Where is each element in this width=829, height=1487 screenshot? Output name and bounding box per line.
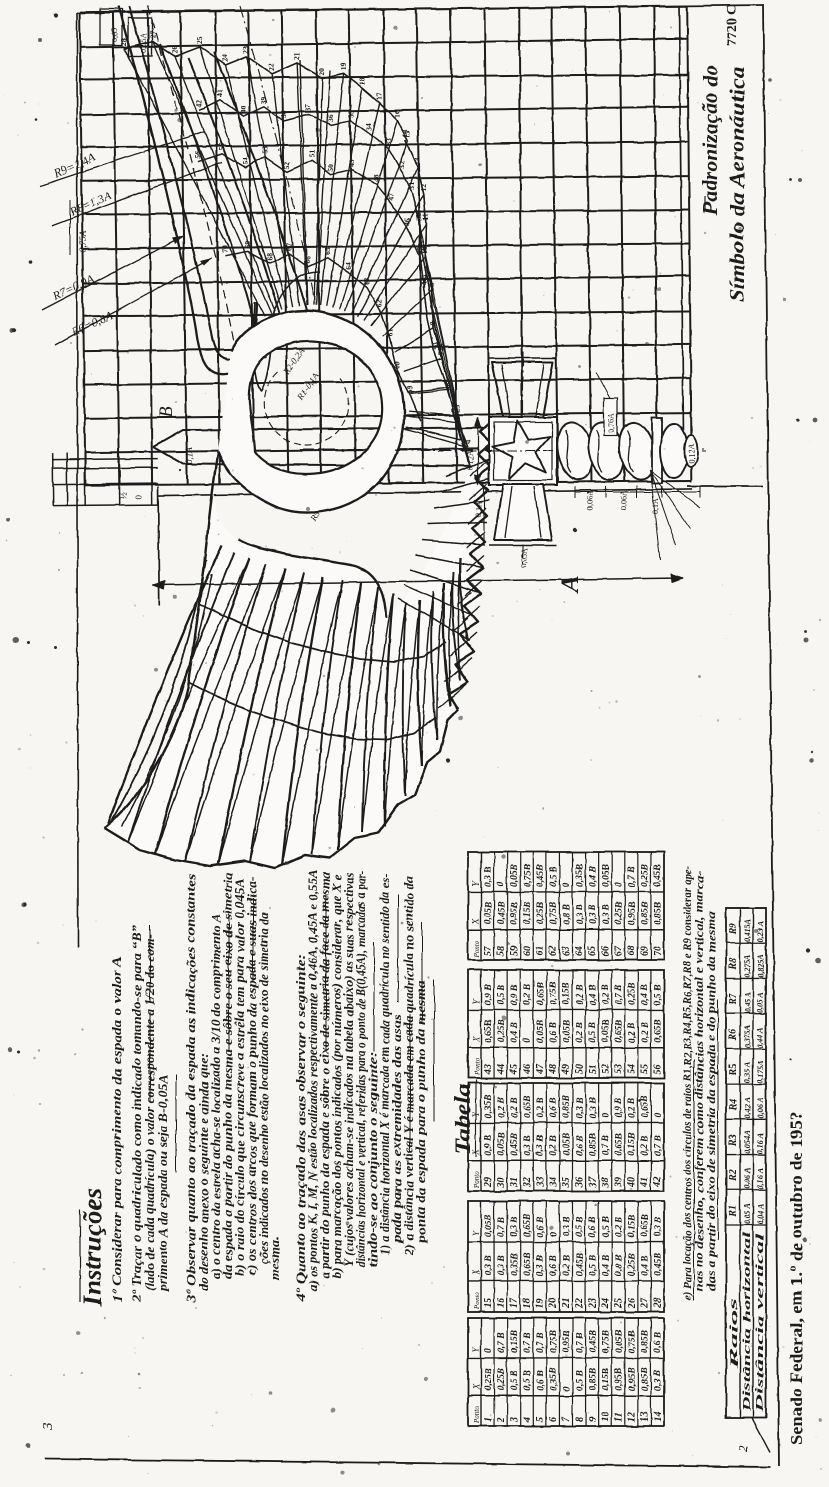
svg-text:0,25B: 0,25B <box>615 902 625 925</box>
svg-text:0,5 B: 0,5 B <box>575 1216 585 1237</box>
svg-text:32: 32 <box>522 1177 533 1188</box>
svg-text:0,415A: 0,415A <box>743 918 752 942</box>
svg-text:½: ½ <box>118 492 128 499</box>
svg-text:0,45B: 0,45B <box>654 1253 664 1276</box>
svg-text:0: 0 <box>523 1038 533 1043</box>
svg-text:0,45B: 0,45B <box>588 1330 598 1353</box>
svg-text:0,9 B: 0,9 B <box>484 1135 494 1156</box>
svg-text:0,95B: 0,95B <box>628 1368 638 1391</box>
svg-text:0,05B: 0,05B <box>615 1330 625 1353</box>
svg-text:0,375A: 0,375A <box>743 1024 752 1048</box>
svg-text:0,15B: 0,15B <box>628 1214 638 1237</box>
svg-text:15: 15 <box>483 1298 494 1308</box>
svg-text:0,7 B: 0,7 B <box>615 984 625 1005</box>
svg-text:0,05B: 0,05B <box>601 864 611 887</box>
svg-text:3: 3 <box>40 1423 56 1432</box>
svg-text:0,15B: 0,15B <box>628 1133 638 1156</box>
svg-text:0,95B: 0,95B <box>628 902 638 925</box>
svg-text:0,35B: 0,35B <box>575 864 585 887</box>
svg-text:0,05 A: 0,05 A <box>756 991 765 1013</box>
svg-text:0,3 B: 0,3 B <box>536 1255 546 1276</box>
svg-text:42: 42 <box>653 1177 664 1188</box>
svg-text:0,85B: 0,85B <box>641 1368 651 1391</box>
svg-text:0,05 A: 0,05 A <box>743 1202 752 1224</box>
svg-text:0,05B: 0,05B <box>601 1020 611 1043</box>
svg-text:36: 36 <box>574 1177 585 1188</box>
svg-text:0,12A: 0,12A <box>466 450 475 470</box>
svg-text:64: 64 <box>344 262 353 270</box>
svg-text:34: 34 <box>548 1177 559 1188</box>
svg-text:0,15B: 0,15B <box>523 902 533 925</box>
svg-text:0,2 B: 0,2 B <box>536 1097 546 1118</box>
svg-text:0,75B: 0,75B <box>628 1330 638 1353</box>
svg-text:4: 4 <box>522 1417 533 1423</box>
svg-text:0,8 B: 0,8 B <box>615 1255 625 1276</box>
svg-text:R6=0,8A: R6=0,8A <box>69 308 116 339</box>
svg-text:19: 19 <box>535 1298 546 1308</box>
svg-text:0,6 B: 0,6 B <box>536 1216 546 1237</box>
svg-text:0,25B: 0,25B <box>484 1368 494 1391</box>
svg-text:18: 18 <box>522 1298 533 1308</box>
svg-text:68: 68 <box>627 946 638 956</box>
svg-text:0: 0 <box>562 882 572 887</box>
svg-text:0,4 B: 0,4 B <box>588 866 598 887</box>
svg-text:24: 24 <box>220 54 229 62</box>
svg-text:0,5 B: 0,5 B <box>601 1216 611 1237</box>
svg-text:9: 9 <box>587 1417 598 1422</box>
svg-text:38: 38 <box>279 110 288 118</box>
svg-text:0,45B: 0,45B <box>654 864 664 887</box>
svg-text:Y: Y <box>471 1230 481 1236</box>
svg-text:0,95B: 0,95B <box>510 902 520 925</box>
svg-text:50: 50 <box>574 1064 585 1074</box>
svg-text:3: 3 <box>509 1417 520 1423</box>
svg-text:0,1A: 0,1A <box>184 447 194 464</box>
svg-text:0,16 A: 0,16 A <box>756 1132 765 1154</box>
svg-text:0,3 B: 0,3 B <box>484 1255 494 1276</box>
svg-text:0,4 B: 0,4 B <box>601 1255 611 1276</box>
svg-text:0,4 B: 0,4 B <box>510 1022 520 1043</box>
svg-text:0,5 B: 0,5 B <box>588 1255 598 1276</box>
svg-text:10: 10 <box>600 1412 611 1422</box>
svg-text:0,6 B: 0,6 B <box>549 1022 559 1043</box>
svg-text:Distância vertical: Distância vertical <box>755 1233 766 1414</box>
svg-text:0,2 B: 0,2 B <box>575 1022 585 1043</box>
svg-text:0: 0 <box>562 1386 572 1391</box>
svg-text:0,85B: 0,85B <box>588 1368 598 1391</box>
svg-text:Tabela: Tabela <box>450 1083 475 1155</box>
svg-text:0,825A: 0,825A <box>756 954 765 978</box>
svg-text:0,75B: 0,75B <box>601 1330 611 1353</box>
svg-text:0,05B: 0,05B <box>484 902 494 925</box>
svg-text:0,05B: 0,05B <box>510 864 520 887</box>
svg-text:63: 63 <box>561 946 572 956</box>
svg-text:51: 51 <box>587 1064 598 1074</box>
svg-text:0,7 B: 0,7 B <box>575 1332 585 1353</box>
svg-text:0,7 B: 0,7 B <box>497 1332 507 1353</box>
svg-text:0,65B: 0,65B <box>654 1020 664 1043</box>
svg-text:25: 25 <box>614 1298 625 1309</box>
svg-text:0,5 B: 0,5 B <box>510 1370 520 1391</box>
svg-text:0,05B: 0,05B <box>536 1020 546 1043</box>
svg-text:0,06 A: 0,06 A <box>756 1097 765 1119</box>
svg-text:13: 13 <box>640 1412 651 1422</box>
svg-text:0,5 B: 0,5 B <box>588 1022 598 1043</box>
svg-text:0,7 B: 0,7 B <box>654 1135 664 1156</box>
svg-text:X: X <box>471 1269 481 1276</box>
svg-text:X: X <box>471 1036 481 1043</box>
svg-text:62: 62 <box>548 946 559 956</box>
svg-text:38: 38 <box>600 1177 611 1188</box>
svg-text:0,2 B: 0,2 B <box>641 1022 651 1043</box>
svg-text:50: 50 <box>325 164 334 172</box>
svg-text:0,75B: 0,75B <box>549 902 559 925</box>
svg-text:70: 70 <box>653 946 664 956</box>
svg-text:55: 55 <box>640 1064 651 1074</box>
svg-text:30: 30 <box>496 1177 507 1188</box>
svg-text:41: 41 <box>640 1177 651 1188</box>
svg-text:55: 55 <box>217 143 226 151</box>
svg-text:0: 0 <box>615 882 625 887</box>
svg-text:Senado Federal, em 1.º de outu: Senado Federal, em 1.º de outubro de 195… <box>787 1111 806 1445</box>
svg-text:19: 19 <box>339 63 348 71</box>
svg-text:X: X <box>471 1384 481 1391</box>
svg-text:0,3 B: 0,3 B <box>588 904 598 925</box>
svg-text:X: X <box>471 918 481 925</box>
svg-text:0,04 A: 0,04 A <box>756 1202 765 1224</box>
svg-text:0,42 A: 0,42 A <box>743 1097 752 1119</box>
svg-text:0,7 B: 0,7 B <box>523 1332 533 1353</box>
svg-text:0,35B: 0,35B <box>549 1368 559 1391</box>
svg-text:0,65B: 0,65B <box>615 1020 625 1043</box>
svg-text:49: 49 <box>561 1064 572 1075</box>
svg-text:R3: R3 <box>728 1134 739 1147</box>
svg-text:51: 51 <box>307 150 316 158</box>
svg-text:0,95B: 0,95B <box>562 1330 572 1353</box>
svg-text:ponta da espada para o punho d: ponta da espada para o punho da mesma <box>414 980 428 1244</box>
svg-text:0: 0 <box>134 494 144 499</box>
svg-text:39: 39 <box>259 96 268 104</box>
svg-text:0,3 B: 0,3 B <box>497 1255 507 1276</box>
svg-text:das a partir do eixo de simetr: das a partir do eixo de simetria da espa… <box>704 911 718 1291</box>
svg-text:0,3 B: 0,3 B <box>601 904 611 925</box>
svg-text:0,2 B: 0,2 B <box>641 1135 651 1156</box>
svg-text:0,7 B: 0,7 B <box>536 1332 546 1353</box>
svg-text:0,4 B: 0,4 B <box>641 1255 651 1276</box>
svg-text:33: 33 <box>535 1177 546 1188</box>
svg-text:22: 22 <box>574 1298 585 1309</box>
svg-text:62: 62 <box>375 300 384 308</box>
svg-text:0,75B: 0,75B <box>549 1330 559 1353</box>
svg-text:40: 40 <box>627 1177 638 1188</box>
svg-text:0,3 B: 0,3 B <box>523 1135 533 1156</box>
svg-text:52: 52 <box>600 1064 611 1074</box>
svg-text:0,44 A: 0,44 A <box>756 1026 765 1048</box>
svg-text:0,5 B: 0,5 B <box>497 984 507 1005</box>
svg-text:54: 54 <box>627 1064 638 1074</box>
svg-text:0,95B: 0,95B <box>615 1368 625 1391</box>
svg-text:0,7 B: 0,7 B <box>601 1135 611 1156</box>
svg-text:0,76A: 0,76A <box>607 413 616 433</box>
svg-text:Y: Y <box>471 880 481 886</box>
svg-text:0,175A: 0,175A <box>756 1059 765 1083</box>
svg-text:0,45B: 0,45B <box>575 1253 585 1276</box>
svg-text:56: 56 <box>653 1064 664 1074</box>
svg-text:0,3 B: 0,3 B <box>654 1370 664 1391</box>
svg-text:44: 44 <box>496 1064 507 1075</box>
svg-text:0,05A: 0,05A <box>139 33 148 53</box>
svg-text:Y: Y <box>471 1346 481 1352</box>
svg-text:14: 14 <box>653 1412 664 1422</box>
svg-text:12: 12 <box>627 1412 638 1422</box>
svg-text:35: 35 <box>561 1177 572 1188</box>
svg-text:48: 48 <box>548 1064 559 1075</box>
svg-text:A: A <box>557 575 584 594</box>
svg-text:0,12A: 0,12A <box>687 443 696 463</box>
svg-text:16: 16 <box>392 110 401 118</box>
svg-text:0,6 B: 0,6 B <box>588 1216 598 1237</box>
svg-text:0,15B: 0,15B <box>601 1368 611 1391</box>
svg-text:0,65B: 0,65B <box>641 1214 651 1237</box>
svg-text:59: 59 <box>509 946 520 956</box>
svg-text:R1: R1 <box>728 1205 739 1218</box>
svg-text:0,06 A: 0,06 A <box>743 1167 752 1189</box>
svg-text:29: 29 <box>414 211 423 219</box>
svg-text:37: 37 <box>587 1176 598 1188</box>
svg-text:0,65B: 0,65B <box>536 982 546 1005</box>
svg-text:34: 34 <box>365 123 374 131</box>
svg-text:0,65B: 0,65B <box>484 1020 494 1043</box>
svg-text:0,45B: 0,45B <box>536 864 546 887</box>
svg-text:21: 21 <box>561 1298 572 1309</box>
svg-text:0,06A: 0,06A <box>585 490 594 510</box>
svg-text:0,35B: 0,35B <box>510 1253 520 1276</box>
svg-text:0,15B: 0,15B <box>510 1330 520 1353</box>
svg-text:60: 60 <box>522 946 533 956</box>
svg-text:0,05B: 0,05B <box>497 1133 507 1156</box>
svg-text:0,1A: 0,1A <box>651 498 660 514</box>
svg-text:24: 24 <box>600 1298 611 1309</box>
svg-text:0,65B: 0,65B <box>523 1253 533 1276</box>
svg-text:0,45B: 0,45B <box>497 902 507 925</box>
svg-text:0,2 B: 0,2 B <box>615 1216 625 1237</box>
svg-text:0,2 B: 0,2 B <box>628 1022 638 1043</box>
svg-text:0,7 B: 0,7 B <box>628 866 638 887</box>
svg-text:0,75B: 0,75B <box>523 864 533 887</box>
svg-text:0,9 B: 0,9 B <box>615 1097 625 1118</box>
svg-text:mesma.: mesma. <box>268 1236 282 1280</box>
svg-text:0,2 B: 0,2 B <box>601 984 611 1005</box>
svg-text:R4: R4 <box>728 1099 739 1112</box>
svg-text:0: 0 <box>497 882 507 887</box>
svg-text:31: 31 <box>509 1177 520 1188</box>
svg-text:0,85B: 0,85B <box>562 1095 572 1118</box>
svg-text:R5: R5 <box>728 1064 739 1077</box>
svg-text:0,3 B: 0,3 B <box>510 1216 520 1237</box>
svg-text:0,5 B: 0,5 B <box>575 1370 585 1391</box>
svg-text:0,05B: 0,05B <box>484 1214 494 1237</box>
svg-text:46: 46 <box>522 1064 533 1075</box>
svg-text:41: 41 <box>215 89 224 97</box>
svg-text:0,35B: 0,35B <box>484 1095 494 1118</box>
svg-text:R2: R2 <box>728 1169 739 1182</box>
svg-text:65: 65 <box>323 247 332 255</box>
svg-text:54: 54 <box>241 157 250 165</box>
svg-text:Símbolo da Aeronáutica: Símbolo da Aeronáutica <box>725 67 749 302</box>
svg-text:8: 8 <box>574 1417 585 1422</box>
svg-text:0,85B: 0,85B <box>654 902 664 925</box>
svg-text:0,2 B: 0,2 B <box>628 1097 638 1118</box>
svg-text:0,25B: 0,25B <box>497 1020 507 1043</box>
svg-text:Distância horizontal: Distância horizontal <box>742 1232 753 1415</box>
svg-text:2º Traçar o quadriculado como: 2º Traçar o quadriculado como indicado t… <box>130 924 144 1303</box>
svg-text:0,6 B: 0,6 B <box>549 1097 559 1118</box>
svg-text:0,2 B: 0,2 B <box>497 1097 507 1118</box>
svg-text:0,75A: 0,75A <box>78 230 88 252</box>
svg-text:Instruções: Instruções <box>78 1188 107 1307</box>
svg-text:0,25B: 0,25B <box>497 1368 507 1391</box>
svg-text:57: 57 <box>483 945 494 956</box>
svg-text:R1-0,1A: R1-0,1A <box>295 371 321 402</box>
svg-text:0,9 B: 0,9 B <box>484 984 494 1005</box>
svg-text:69: 69 <box>640 946 651 956</box>
svg-text:2: 2 <box>496 1417 507 1423</box>
svg-text:0: 0 <box>484 1348 494 1353</box>
svg-text:61: 61 <box>535 946 546 956</box>
svg-text:7: 7 <box>561 1416 572 1422</box>
svg-text:64: 64 <box>574 946 585 956</box>
svg-text:0,2 B: 0,2 B <box>549 1135 559 1156</box>
svg-text:0,65B: 0,65B <box>641 1095 651 1118</box>
svg-text:X: X <box>471 1149 481 1156</box>
svg-text:47: 47 <box>535 1063 546 1075</box>
svg-text:0,25B: 0,25B <box>536 902 546 925</box>
svg-text:35: 35 <box>346 110 355 118</box>
svg-text:0,3 B: 0,3 B <box>575 1097 585 1118</box>
svg-text:Ponto: Ponto <box>473 1292 481 1310</box>
svg-text:0,25B: 0,25B <box>628 982 638 1005</box>
svg-text:1: 1 <box>483 1417 494 1422</box>
svg-text:0,45B: 0,45B <box>510 1133 520 1156</box>
svg-text:0,6 B: 0,6 B <box>654 1332 664 1353</box>
svg-text:25: 25 <box>195 36 204 44</box>
svg-text:28: 28 <box>653 1298 664 1309</box>
svg-text:0,3 B: 0,3 B <box>654 1216 664 1237</box>
svg-text:Ponto: Ponto <box>473 1406 481 1424</box>
svg-text:Y: Y <box>471 998 481 1004</box>
svg-text:0,3 B: 0,3 B <box>575 904 585 925</box>
svg-text:66: 66 <box>303 256 312 264</box>
svg-text:22: 22 <box>267 63 276 71</box>
svg-text:3º Observar quanto ao traçado: 3º Observar quanto ao traçado da espada … <box>184 874 198 1303</box>
svg-text:20: 20 <box>548 1298 559 1309</box>
svg-text:43: 43 <box>483 1064 494 1075</box>
svg-text:0,16 A: 0,16 A <box>756 1167 765 1189</box>
svg-text:0,4 B: 0,4 B <box>641 984 651 1005</box>
svg-text:primento A da espada ou seja B: primento A da espada ou seja B-0,05A <box>156 1075 170 1292</box>
svg-text:0,3 B: 0,3 B <box>484 866 494 887</box>
svg-text:0,9 B: 0,9 B <box>510 984 520 1005</box>
svg-text:29: 29 <box>483 1177 494 1188</box>
svg-text:0,85B: 0,85B <box>588 1133 598 1156</box>
svg-text:0,7 B: 0,7 B <box>497 1216 507 1237</box>
svg-text:39: 39 <box>614 1177 625 1188</box>
svg-text:0,06A: 0,06A <box>619 490 628 510</box>
svg-text:0,65B: 0,65B <box>523 1214 533 1237</box>
svg-text:0,85B: 0,85B <box>641 1330 651 1353</box>
svg-text:0: 0 <box>549 1232 559 1237</box>
svg-text:0,1A: 0,1A <box>474 501 483 517</box>
svg-text:65: 65 <box>587 946 598 956</box>
svg-text:Raios: Raios <box>728 1298 740 1371</box>
svg-text:0,85B: 0,85B <box>641 902 651 925</box>
svg-text:0,35 A: 0,35 A <box>743 1062 752 1084</box>
svg-text:0,275A: 0,275A <box>743 954 752 978</box>
svg-text:0,05B: 0,05B <box>562 1133 572 1156</box>
svg-text:20: 20 <box>317 67 326 75</box>
svg-text:27: 27 <box>640 1297 651 1309</box>
svg-text:53: 53 <box>614 1064 625 1074</box>
svg-text:0,05B: 0,05B <box>562 1020 572 1043</box>
svg-text:18: 18 <box>357 77 366 85</box>
svg-text:0,65B: 0,65B <box>615 1133 625 1156</box>
svg-text:Ponto: Ponto <box>473 940 481 958</box>
svg-text:R6: R6 <box>728 1028 739 1041</box>
svg-text:Ponto: Ponto <box>473 1058 481 1076</box>
svg-text:0,8 B: 0,8 B <box>562 904 572 925</box>
svg-text:16: 16 <box>496 1298 507 1308</box>
svg-text:0,6 B: 0,6 B <box>575 1135 585 1156</box>
svg-text:0,15B: 0,15B <box>562 982 572 1005</box>
svg-text:11: 11 <box>614 1413 625 1422</box>
svg-text:0,75B: 0,75B <box>549 982 559 1005</box>
svg-text:2: 2 <box>736 1445 751 1452</box>
svg-text:23: 23 <box>242 46 251 54</box>
svg-text:0,054A: 0,054A <box>743 1130 752 1154</box>
svg-text:23: 23 <box>587 1298 598 1309</box>
svg-text:B: B <box>156 406 177 418</box>
svg-text:0,4 B: 0,4 B <box>588 984 598 1005</box>
svg-text:6: 6 <box>548 1417 559 1422</box>
svg-text:R8: R8 <box>728 958 739 971</box>
svg-text:0,65B: 0,65B <box>523 1095 533 1118</box>
svg-text:0,6 B: 0,6 B <box>536 1370 546 1391</box>
svg-text:66: 66 <box>600 946 611 956</box>
svg-text:0,05A: 0,05A <box>520 548 529 568</box>
svg-text:0,2 B: 0,2 B <box>562 1255 572 1276</box>
svg-text:17: 17 <box>375 92 384 100</box>
svg-text:0,25B: 0,25B <box>641 864 651 887</box>
svg-text:67: 67 <box>614 945 625 956</box>
svg-text:7720 C: 7720 C <box>725 4 740 46</box>
svg-text:R7=0,9A: R7=0,9A <box>50 272 97 303</box>
svg-text:0,05: 0,05 <box>110 28 119 42</box>
svg-text:26: 26 <box>627 1298 638 1309</box>
svg-text:0,3 B: 0,3 B <box>562 1216 572 1237</box>
svg-text:58: 58 <box>496 946 507 956</box>
svg-text:R9: R9 <box>728 923 739 936</box>
svg-text:R7: R7 <box>728 992 739 1006</box>
svg-text:0,5 B: 0,5 B <box>523 1370 533 1391</box>
svg-text:0,6 B: 0,6 B <box>549 1255 559 1276</box>
svg-text:1º Considerar para comprimento: 1º Considerar para comprimento da espada… <box>110 956 124 1302</box>
svg-text:14: 14 <box>400 129 409 137</box>
svg-text:R9=1,4A: R9=1,4A <box>51 150 98 181</box>
svg-text:0,25B: 0,25B <box>628 1253 638 1276</box>
svg-text:0,2 B: 0,2 B <box>510 1097 520 1118</box>
svg-text:0,2 B: 0,2 B <box>575 984 585 1005</box>
svg-text:0,45 A: 0,45 A <box>743 991 752 1013</box>
